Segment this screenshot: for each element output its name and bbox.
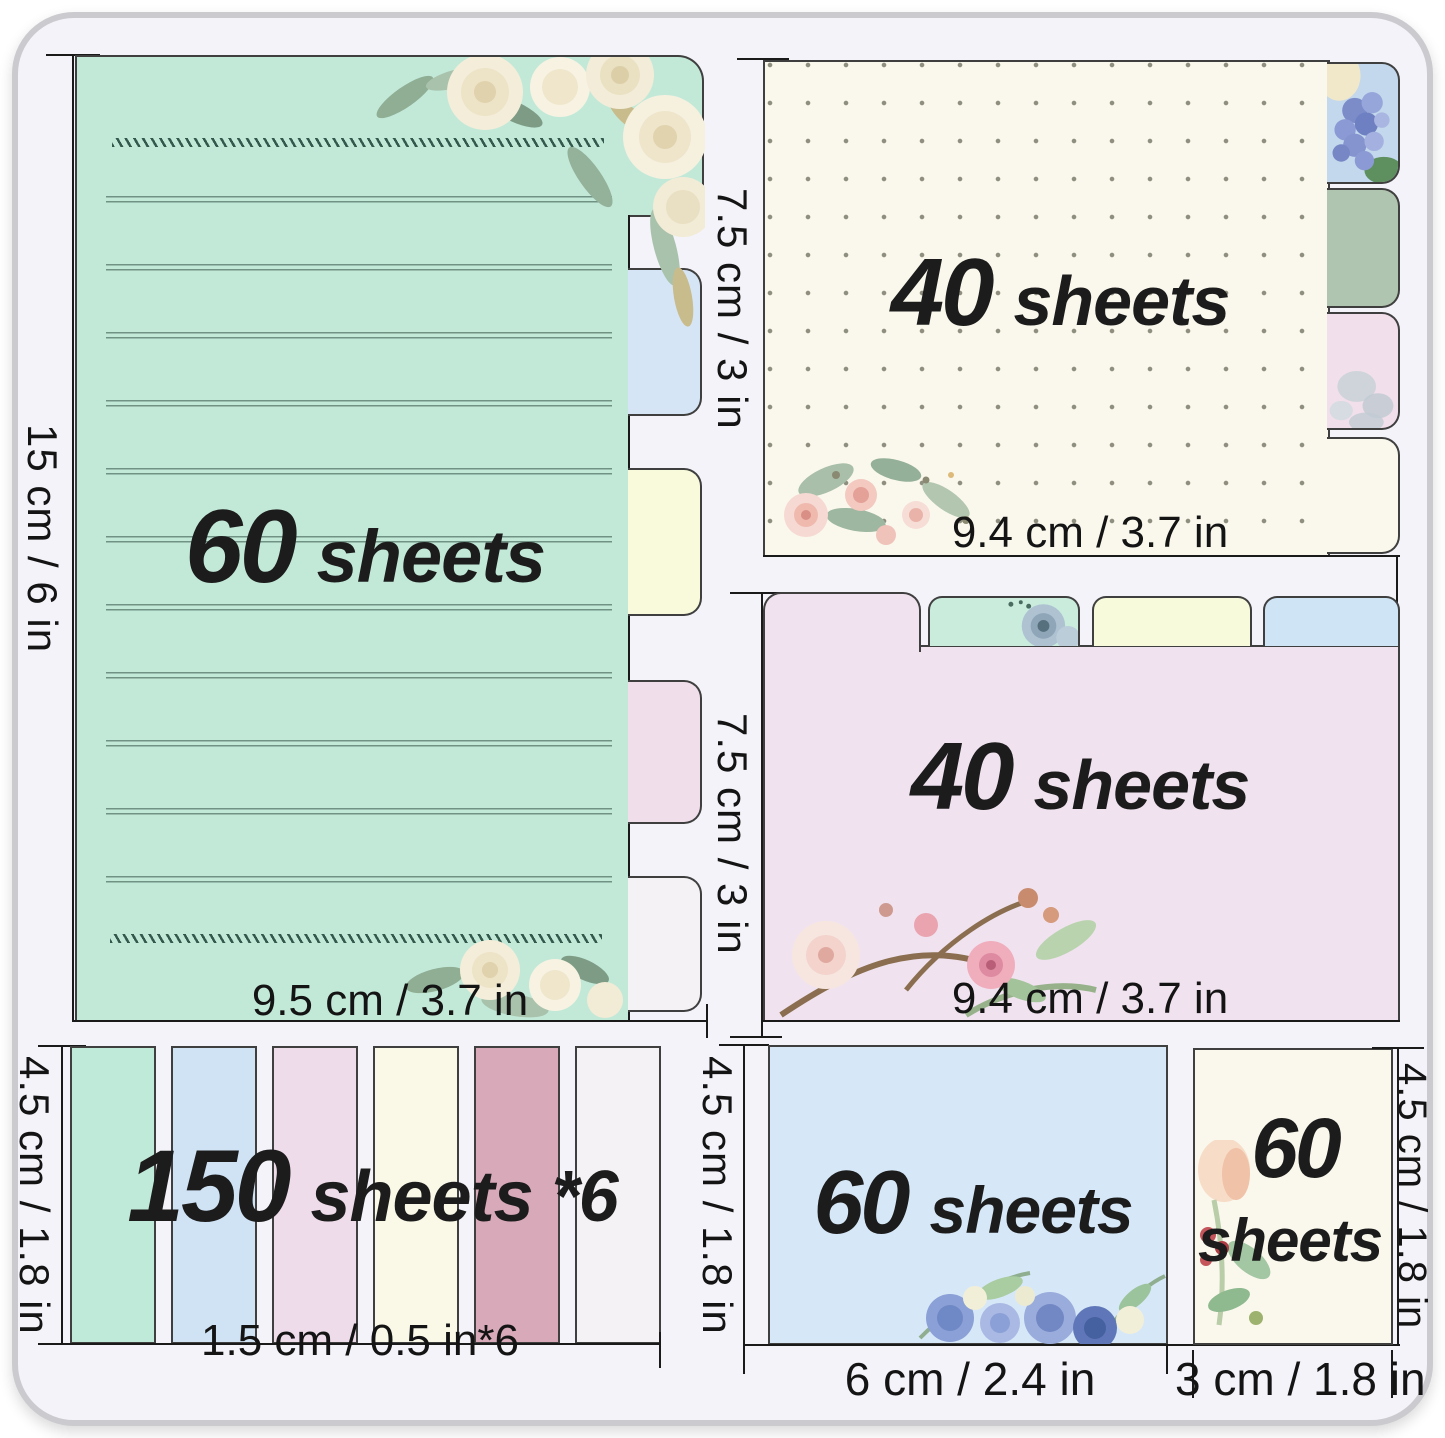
- height-label-lined-pad: 15 cm / 6 in: [14, 55, 66, 1022]
- side-tab-hydrangea: [1327, 62, 1400, 184]
- dim-line-height-lined-pad: [72, 55, 74, 1022]
- sheet-count-index-tabs: 150 sheets *6: [85, 1128, 660, 1245]
- sheet-count-number: 150: [127, 1128, 288, 1245]
- side-tab-green: [1327, 188, 1400, 308]
- height-label-index-tabs: 4.5 cm / 1.8 in: [8, 1046, 58, 1345]
- sheet-count-unit: sheets: [1198, 1206, 1382, 1275]
- top-tab-pink: [763, 592, 921, 652]
- width-label-index-tabs: 1.5 cm / 0.5 in*6: [120, 1316, 600, 1366]
- width-label-plain-pad: 9.4 cm / 3.7 in: [850, 974, 1330, 1024]
- sheet-count-dotted-pad: 40 sheets: [810, 238, 1310, 348]
- sheet-count-number: 60: [185, 488, 295, 607]
- sheet-count-unit: sheets: [317, 514, 545, 599]
- width-label-blue-pad: 6 cm / 2.4 in: [800, 1352, 1140, 1406]
- height-label-blue-pad: 4.5 cm / 1.8 in: [691, 1045, 741, 1345]
- width-label-dotted-pad: 9.4 cm / 3.7 in: [850, 508, 1330, 558]
- white-roses-top-illustration: [365, 57, 705, 327]
- dim-tick-right-blue-pad: [1166, 1344, 1168, 1374]
- watercolor-blobs-illustration: [1327, 314, 1398, 428]
- top-tab-yellow: [1092, 596, 1252, 646]
- height-label-dotted-pad: 7.5 cm / 3 in: [706, 60, 756, 557]
- blue-rose-illustration: [930, 598, 1078, 646]
- sheet-count-plain-pad: 40 sheets: [820, 722, 1340, 832]
- side-tab-pink: [628, 680, 702, 824]
- blue-bouquet-illustration: [880, 1258, 1168, 1345]
- sheet-count-unit: sheets: [1013, 261, 1229, 341]
- side-tab-cream: [1327, 437, 1400, 554]
- width-label-small-pad: 3 cm / 1.8 in: [1175, 1352, 1415, 1406]
- side-tab-yellow: [628, 468, 702, 616]
- top-tab-mint: [928, 596, 1080, 646]
- sheet-count-unit: sheets *6: [310, 1156, 617, 1238]
- dim-line-height-blue-pad: [743, 1045, 745, 1345]
- sheet-count-number: 60: [813, 1152, 907, 1255]
- sheet-count-small-pad-number: 60: [1210, 1100, 1380, 1197]
- sheet-count-unit: sheets: [929, 1172, 1132, 1248]
- sheet-count-number: 40: [911, 722, 1012, 832]
- sheet-count-blue-pad: 60 sheets: [788, 1152, 1158, 1255]
- dim-tick-left-blue-pad: [743, 1344, 745, 1374]
- height-label-small-pad: 4.5 cm / 1.8 in: [1398, 1048, 1434, 1345]
- dim-tick-right-index-tabs: [659, 1332, 661, 1368]
- sheet-count-number: 60: [1251, 1100, 1338, 1197]
- dim-line-height-index-tabs: [61, 1046, 63, 1345]
- dim-tick-right-dotted-pad: [1396, 555, 1398, 603]
- sheet-count-lined-pad: 60 sheets: [130, 488, 600, 607]
- sheet-count-small-pad-unit: sheets: [1200, 1206, 1380, 1275]
- hydrangea-illustration: [1327, 64, 1398, 182]
- width-label-lined-pad: 9.5 cm / 3.7 in: [140, 976, 640, 1026]
- sheet-count-unit: sheets: [1033, 745, 1249, 825]
- top-tab-blue: [1263, 596, 1400, 646]
- dim-tick-bottom-plain-pad: [730, 1036, 782, 1038]
- side-tab-pink-watercolor: [1327, 312, 1400, 430]
- height-label-plain-pad: 7.5 cm / 3 in: [706, 645, 756, 1022]
- sheet-count-number: 40: [891, 238, 992, 348]
